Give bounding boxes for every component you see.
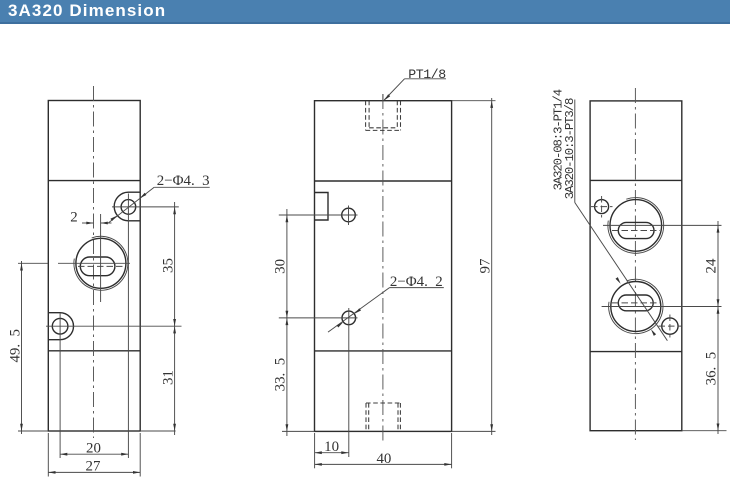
svg-text:31: 31: [160, 370, 176, 385]
svg-text:10: 10: [324, 439, 339, 455]
svg-text:97: 97: [477, 258, 493, 273]
svg-text:PT1/8: PT1/8: [408, 67, 446, 82]
svg-text:20: 20: [86, 440, 101, 456]
svg-text:30: 30: [273, 259, 289, 274]
svg-text:2−Φ4. 3: 2−Φ4. 3: [157, 173, 210, 189]
svg-text:33. 5: 33. 5: [273, 358, 289, 392]
svg-text:27: 27: [86, 459, 101, 475]
svg-text:24: 24: [704, 258, 720, 273]
svg-text:35: 35: [160, 258, 176, 273]
svg-text:36. 5: 36. 5: [704, 352, 720, 386]
svg-text:2: 2: [70, 209, 77, 225]
svg-text:40: 40: [376, 451, 391, 467]
svg-text:49. 5: 49. 5: [7, 329, 23, 363]
